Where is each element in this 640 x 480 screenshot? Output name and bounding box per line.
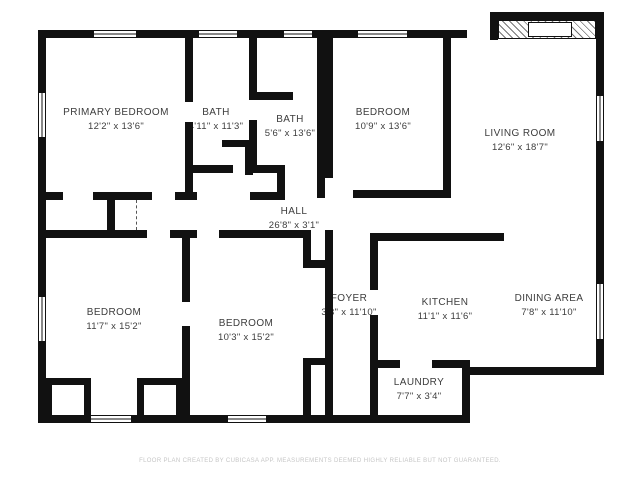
wall: [370, 315, 378, 423]
wall: [247, 165, 285, 173]
room-dims: 11'1" x 11'6": [418, 310, 473, 323]
room-label-bedroom-top: BEDROOM 10'9" x 13'6": [355, 106, 411, 133]
room-label-kitchen: KITCHEN 11'1" x 11'6": [418, 296, 473, 323]
closet-wall: [137, 378, 144, 415]
wall: [325, 38, 333, 178]
wall: [219, 230, 311, 238]
wall: [182, 326, 190, 415]
room-dims: 7'8" x 11'10": [515, 306, 584, 319]
closet-wall: [84, 378, 91, 415]
window: [38, 92, 46, 138]
wall: [182, 230, 190, 302]
wall: [325, 230, 333, 415]
room-dims: 12'2" x 13'6": [63, 120, 169, 133]
room-dims: 10'3" x 15'2": [218, 331, 274, 344]
room-name: HALL: [281, 206, 308, 217]
closet-wall: [45, 378, 52, 415]
wall: [370, 233, 378, 290]
wall: [353, 190, 451, 198]
room-label-hall: HALL 26'8" x 3'1": [269, 205, 319, 232]
floorplan-page: { "floorplan": { "rooms": [ {"id":"prima…: [0, 0, 640, 480]
room-dims: 12'6" x 18'7": [484, 141, 555, 154]
window: [38, 296, 46, 342]
closet-door-dashed: [136, 200, 137, 230]
wall-laundry-right: [462, 360, 470, 423]
room-label-dining-area: DINING AREA 7'8" x 11'10": [515, 292, 584, 319]
wall: [38, 230, 147, 238]
window: [596, 283, 604, 340]
room-name: BEDROOM: [87, 307, 141, 318]
wall: [249, 38, 257, 100]
room-dims: 5'6" x 13'6": [265, 127, 315, 140]
room-name: LAUNDRY: [394, 377, 444, 388]
wall: [277, 173, 285, 200]
wall-dining-bottom: [462, 367, 604, 375]
wall: [370, 360, 400, 368]
window: [357, 30, 408, 38]
wall-kitchen-top: [370, 233, 504, 241]
closet-wall: [303, 358, 325, 365]
room-name: BEDROOM: [356, 107, 410, 118]
room-dims: 10'9" x 13'6": [355, 120, 411, 133]
room-dims: 4'11" x 11'3": [189, 120, 244, 133]
wall: [175, 192, 197, 200]
room-name: BEDROOM: [219, 318, 273, 329]
window: [596, 95, 604, 142]
window: [93, 30, 137, 38]
wall: [185, 122, 193, 200]
window: [198, 30, 238, 38]
room-label-living-room: LIVING ROOM 12'6" x 18'7": [484, 127, 555, 154]
room-label-bath-1: BATH 4'11" x 11'3": [189, 106, 244, 133]
closet-wall: [176, 378, 183, 415]
wall: [443, 38, 451, 196]
room-label-bath-2: BATH 5'6" x 13'6": [265, 113, 315, 140]
wall: [257, 92, 293, 100]
wall: [185, 165, 233, 173]
wall: [93, 192, 152, 200]
closet-wall: [303, 358, 311, 415]
room-label-laundry: LAUNDRY 7'7" x 3'4": [394, 376, 444, 403]
room-name: BATH: [202, 107, 230, 118]
room-name: FOYER: [331, 293, 367, 304]
room-name: LIVING ROOM: [484, 128, 555, 139]
wall: [185, 38, 193, 102]
wall-porch-top: [490, 12, 604, 20]
wall: [303, 260, 333, 268]
wall: [432, 360, 470, 368]
room-name: PRIMARY BEDROOM: [63, 107, 169, 118]
wall: [38, 192, 63, 200]
wall-porch-left: [490, 12, 498, 40]
room-label-primary-bedroom: PRIMARY BEDROOM 12'2" x 13'6": [63, 106, 169, 133]
room-label-bedroom-middle: BEDROOM 10'3" x 15'2": [218, 317, 274, 344]
room-dims: 7'7" x 3'4": [394, 390, 444, 403]
room-name: DINING AREA: [515, 293, 584, 304]
wall: [317, 38, 325, 198]
window: [283, 30, 313, 38]
room-label-bedroom-left: BEDROOM 11'7" x 15'2": [86, 306, 141, 333]
room-name: BATH: [276, 114, 304, 125]
window: [90, 415, 132, 423]
room-name: KITCHEN: [422, 297, 469, 308]
entry-stairs-landing: [528, 22, 572, 37]
wall-outer-left: [38, 30, 46, 423]
floorplan: PRIMARY BEDROOM 12'2" x 13'6" BATH 4'11"…: [0, 0, 640, 480]
disclaimer-text: FLOOR PLAN CREATED BY CUBICASA APP. MEAS…: [0, 458, 640, 464]
room-dims: 11'7" x 15'2": [86, 320, 141, 333]
window: [227, 415, 267, 423]
